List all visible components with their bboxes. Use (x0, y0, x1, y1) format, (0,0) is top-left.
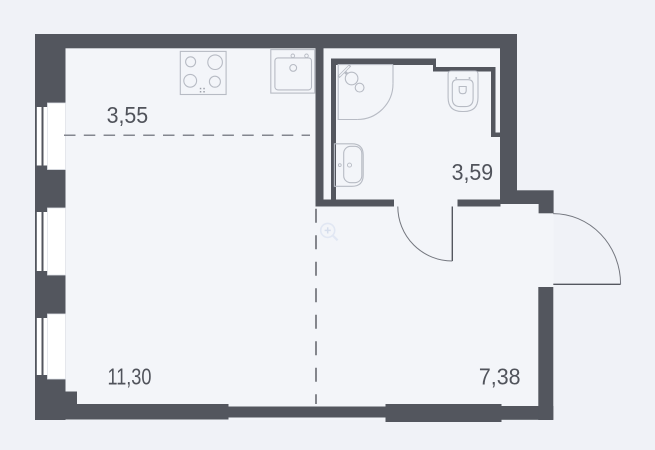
svg-text:3,59: 3,59 (452, 159, 494, 185)
svg-text:11,30: 11,30 (108, 365, 152, 391)
svg-text:7,38: 7,38 (479, 364, 521, 390)
svg-text:3,55: 3,55 (107, 102, 149, 128)
